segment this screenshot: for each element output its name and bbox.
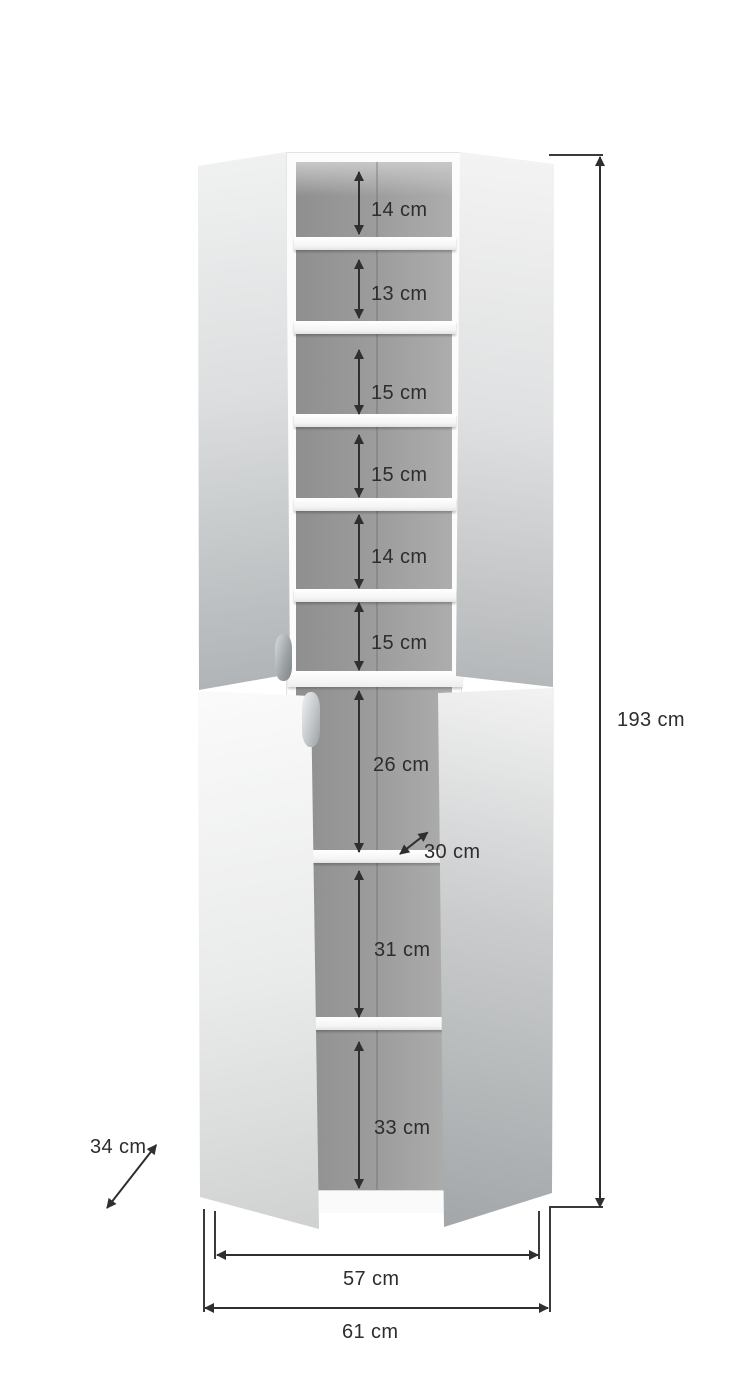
shelf <box>294 414 456 427</box>
shelf-gap-arrow-3 <box>358 350 360 414</box>
middle-divider-shelf <box>288 671 462 687</box>
outer-width-extension-right <box>549 1207 551 1312</box>
shelf-gap-arrow-7 <box>358 691 360 852</box>
door-handle-lower <box>302 692 320 747</box>
shelf-gap-label-1: 14 cm <box>371 197 427 223</box>
shelf-gap-arrow-4 <box>358 435 360 497</box>
shelf-gap-label-4: 15 cm <box>371 462 427 488</box>
shelf-gap-label-3: 15 cm <box>371 380 427 406</box>
door-handle-upper <box>275 634 292 681</box>
shelf <box>294 321 456 334</box>
shelf-gap-arrow-2 <box>358 260 360 318</box>
shelf <box>294 498 456 511</box>
height-label: 193 cm <box>617 707 685 733</box>
door-upper-right <box>452 150 556 692</box>
height-dimension-arrow <box>599 157 601 1207</box>
shelf-gap-label-9: 33 cm <box>374 1115 430 1141</box>
shelf-gap-label-7: 26 cm <box>373 752 429 778</box>
shelf-gap-arrow-8 <box>358 871 360 1017</box>
outer-width-extension-left <box>203 1209 205 1312</box>
shelf <box>294 1017 456 1030</box>
shelf <box>294 589 456 602</box>
outer-width-dimension-arrow <box>205 1307 548 1309</box>
shelf-gap-label-5: 14 cm <box>371 544 427 570</box>
shelf-gap-label-8: 31 cm <box>374 937 430 963</box>
door-lower-left <box>196 680 323 1232</box>
shelf-gap-label-2: 13 cm <box>371 281 427 307</box>
shelf-gap-label-6: 15 cm <box>371 630 427 656</box>
inner-width-dimension-arrow <box>217 1254 538 1256</box>
shelf <box>294 237 456 250</box>
door-lower-right <box>431 680 556 1230</box>
shelf-depth-label: 30 cm <box>424 839 480 865</box>
inner-width-label: 57 cm <box>343 1266 399 1292</box>
shelf-gap-arrow-6 <box>358 603 360 670</box>
depth-label: 34 cm <box>90 1134 146 1160</box>
door-upper-left <box>196 150 293 692</box>
shelf-gap-arrow-9 <box>358 1042 360 1188</box>
shelf-gap-arrow-5 <box>358 515 360 588</box>
outer-width-label: 61 cm <box>342 1319 398 1345</box>
shelf-gap-arrow-1 <box>358 172 360 234</box>
furniture-dimension-diagram: 14 cm 13 cm 15 cm 15 cm 14 cm 15 cm 26 c… <box>0 0 742 1400</box>
